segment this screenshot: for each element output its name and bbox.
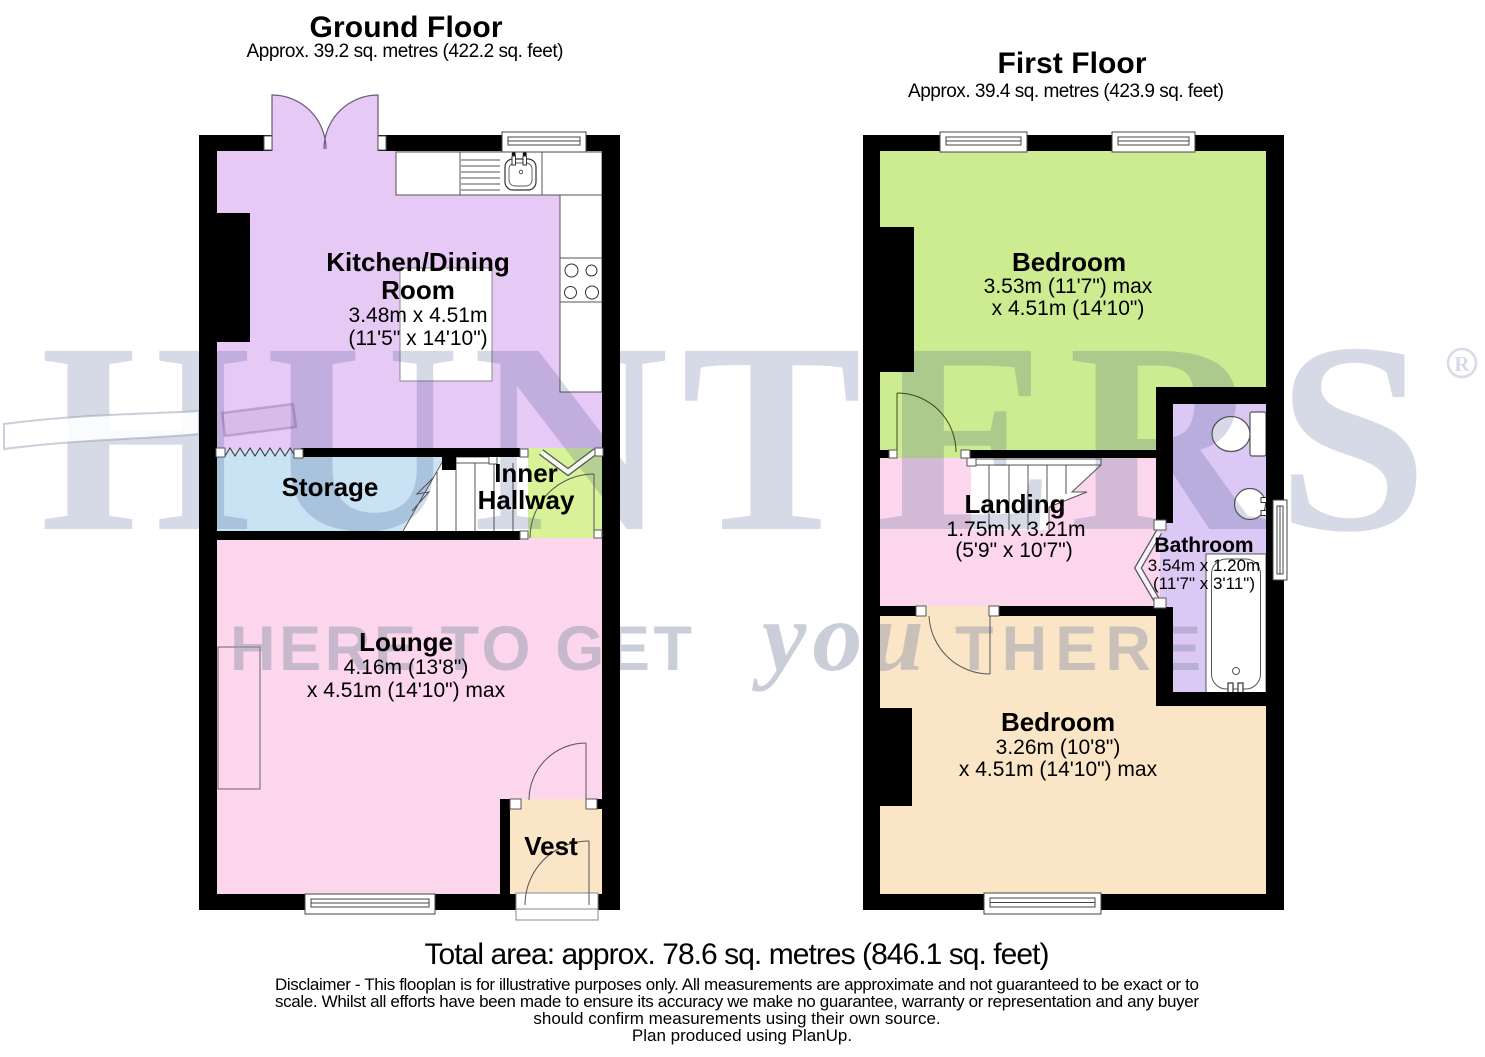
svg-text:R: R <box>1454 352 1470 376</box>
svg-text:Inner: Inner <box>494 458 558 488</box>
svg-text:First Floor: First Floor <box>998 47 1147 80</box>
svg-text:3.54m x 1.20m: 3.54m x 1.20m <box>1148 556 1260 575</box>
svg-text:Room: Room <box>381 275 455 305</box>
svg-text:(11'5" x 14'10"): (11'5" x 14'10") <box>348 327 487 350</box>
svg-text:3.48m x 4.51m: 3.48m x 4.51m <box>349 304 488 327</box>
svg-text:Landing: Landing <box>964 489 1065 519</box>
svg-text:Approx. 39.2 sq. metres (422.2: Approx. 39.2 sq. metres (422.2 sq. feet) <box>247 41 564 62</box>
svg-text:3.53m (11'7") max: 3.53m (11'7") max <box>984 275 1153 298</box>
svg-text:Hallway: Hallway <box>478 485 575 515</box>
svg-text:Lounge: Lounge <box>359 627 453 657</box>
svg-text:3.26m (10'8"): 3.26m (10'8") <box>996 736 1121 759</box>
svg-text:1.75m x 3.21m: 1.75m x 3.21m <box>947 518 1086 541</box>
svg-text:(11'7" x 3'11"): (11'7" x 3'11") <box>1153 574 1255 593</box>
svg-text:Ground Floor: Ground Floor <box>310 11 503 44</box>
svg-text:4.16m (13'8"): 4.16m (13'8") <box>344 656 469 679</box>
svg-text:Storage: Storage <box>282 472 379 502</box>
svg-text:Bathroom: Bathroom <box>1154 534 1253 557</box>
svg-text:Total area: approx. 78.6 sq. m: Total area: approx. 78.6 sq. metres (846… <box>425 938 1050 971</box>
svg-text:(5'9" x 10'7"): (5'9" x 10'7") <box>955 539 1072 562</box>
svg-text:Plan produced using PlanUp.: Plan produced using PlanUp. <box>632 1026 852 1045</box>
svg-text:x 4.51m (14'10") max: x 4.51m (14'10") max <box>959 758 1158 781</box>
svg-text:Bedroom: Bedroom <box>1012 247 1126 277</box>
svg-text:you: you <box>751 581 924 692</box>
svg-text:Approx. 39.4 sq. metres (423.9: Approx. 39.4 sq. metres (423.9 sq. feet) <box>908 81 1224 102</box>
svg-text:Kitchen/Dining: Kitchen/Dining <box>326 247 509 277</box>
svg-text:x 4.51m (14'10") max: x 4.51m (14'10") max <box>307 679 506 702</box>
svg-text:Bedroom: Bedroom <box>1001 707 1115 737</box>
svg-text:Vest: Vest <box>524 831 578 861</box>
svg-text:x 4.51m (14'10"): x 4.51m (14'10") <box>992 297 1145 320</box>
